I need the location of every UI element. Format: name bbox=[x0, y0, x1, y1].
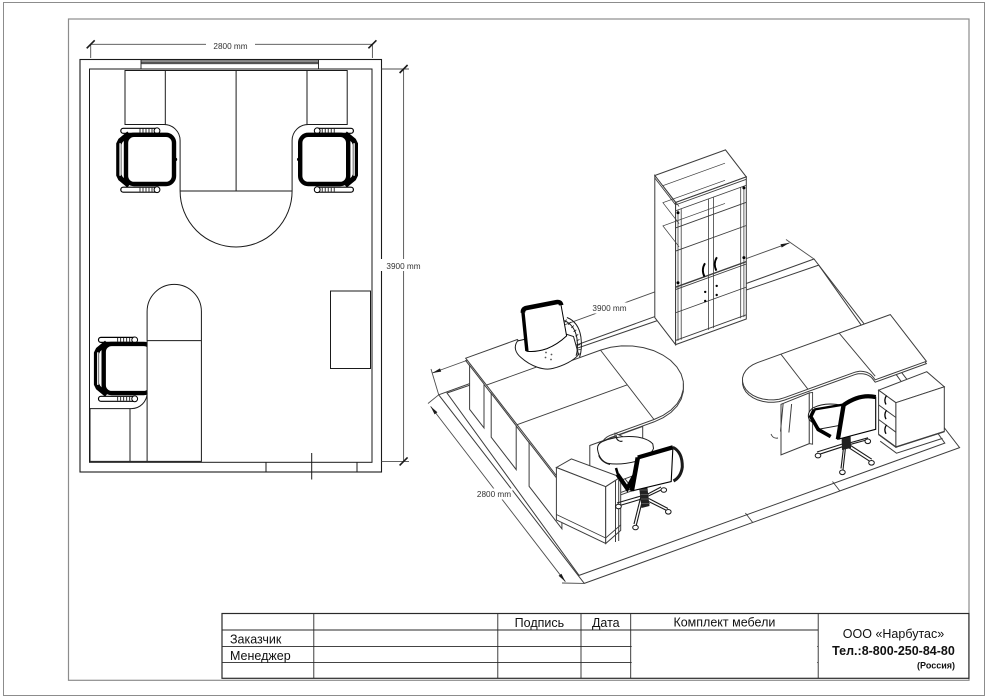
svg-text:Комплект мебели: Комплект мебели bbox=[673, 616, 775, 630]
svg-text:Менеджер: Менеджер bbox=[230, 649, 291, 663]
svg-text:3900 mm: 3900 mm bbox=[386, 262, 420, 271]
svg-text:ООО «Нарбутас»: ООО «Нарбутас» bbox=[843, 627, 944, 641]
svg-text:Заказчик: Заказчик bbox=[230, 633, 282, 647]
svg-text:Дата: Дата bbox=[592, 616, 620, 630]
svg-text:2800 mm: 2800 mm bbox=[213, 42, 247, 51]
svg-text:2800 mm: 2800 mm bbox=[477, 490, 511, 499]
svg-text:3900 mm: 3900 mm bbox=[592, 304, 626, 313]
svg-text:Подпись: Подпись bbox=[515, 616, 564, 630]
svg-text:Тел.:8-800-250-84-80: Тел.:8-800-250-84-80 bbox=[832, 644, 955, 658]
svg-text:(Россия): (Россия) bbox=[917, 661, 955, 671]
